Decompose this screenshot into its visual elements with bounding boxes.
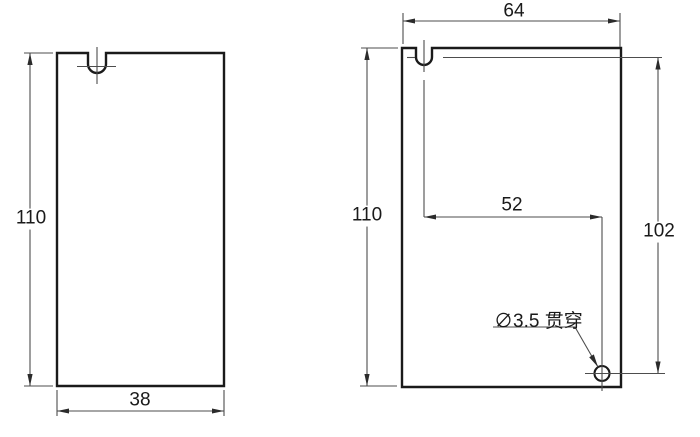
hole-vertical-dim-label: 102 xyxy=(640,222,678,243)
side-width-dim-label: 64 xyxy=(503,2,524,23)
arrowhead xyxy=(403,19,415,24)
arrowhead xyxy=(27,374,32,386)
side-height-dim-label: 110 xyxy=(349,206,385,227)
hole-offset-dim-label: 52 xyxy=(501,196,522,217)
hole-vertical-dimension xyxy=(655,58,660,374)
hole-callout-label: ∅3.5 贯穿 xyxy=(494,306,583,333)
arrowhead xyxy=(27,53,32,65)
arrowhead xyxy=(608,19,620,24)
side-view xyxy=(402,40,665,391)
drawing-canvas: 110 38 64 110 52 102 ∅3.5 贯穿 xyxy=(0,0,700,437)
front-height-dim-label: 110 xyxy=(13,209,49,230)
arrowhead xyxy=(57,409,69,414)
arrowhead xyxy=(590,215,602,220)
hole-callout-leader xyxy=(493,327,598,367)
arrowhead xyxy=(364,374,369,386)
arrowhead xyxy=(589,354,598,367)
front-view xyxy=(57,47,224,386)
arrowhead xyxy=(212,409,224,414)
arrowhead xyxy=(424,215,436,220)
front-width-dim-label: 38 xyxy=(129,391,150,412)
arrowhead xyxy=(364,48,369,60)
front-view-outline xyxy=(57,53,224,386)
arrowhead xyxy=(655,58,660,70)
arrowhead xyxy=(655,362,660,374)
